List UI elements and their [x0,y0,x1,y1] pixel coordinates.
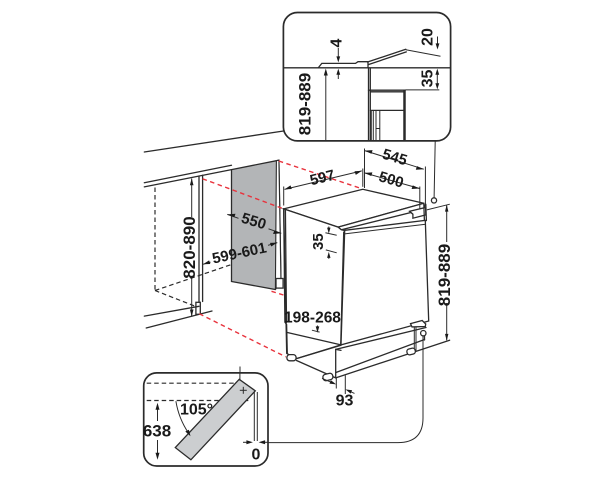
svg-text:198-268: 198-268 [284,310,341,327]
svg-text:819-889: 819-889 [435,244,454,306]
svg-text:35: 35 [310,233,327,250]
svg-text:638: 638 [143,422,171,441]
svg-text:0: 0 [252,447,261,464]
svg-text:4: 4 [329,38,346,47]
svg-text:35: 35 [420,70,437,88]
svg-text:105°: 105° [180,402,213,419]
svg-text:819-889: 819-889 [295,73,314,135]
svg-text:820-890: 820-890 [180,216,199,278]
svg-text:20: 20 [420,28,437,46]
svg-text:93: 93 [336,393,354,410]
